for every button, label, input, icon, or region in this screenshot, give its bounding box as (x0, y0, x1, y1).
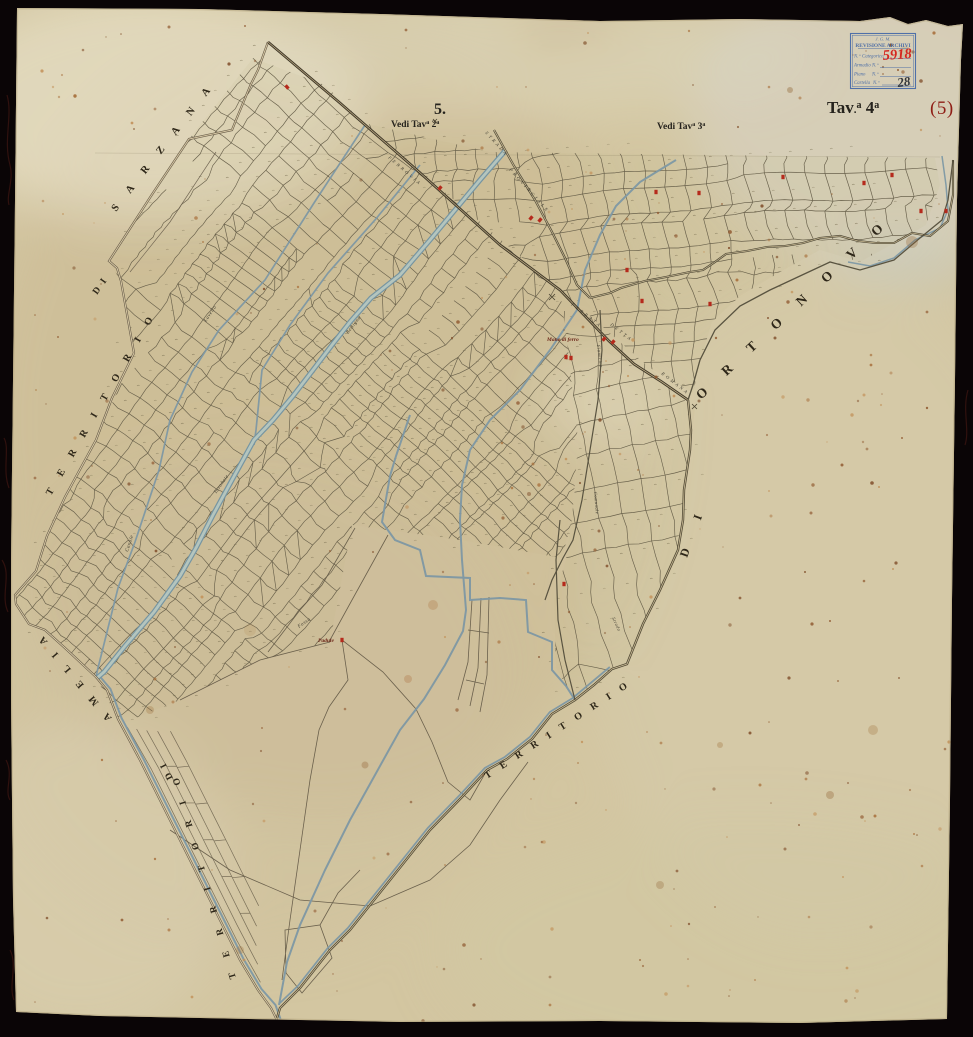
svg-text:Cartella: Cartella (854, 81, 871, 86)
svg-text:Piano: Piano (853, 73, 866, 78)
svg-text:o: o (878, 79, 880, 83)
svg-text:N.: N. (872, 81, 877, 86)
svg-text:N.: N. (871, 73, 876, 78)
svg-text:Categorico: Categorico (862, 55, 884, 60)
svg-text:5918: 5918 (882, 46, 913, 64)
svg-text:Padule: Padule (318, 638, 334, 644)
svg-text:Mano di ferro: Mano di ferro (546, 337, 579, 343)
svg-text:Tav.a 4a: Tav.a 4a (827, 98, 879, 117)
svg-text:Vedi Tava 3a: Vedi Tava 3a (657, 122, 705, 132)
svg-text:o: o (877, 71, 879, 75)
svg-text:28: 28 (895, 73, 911, 90)
svg-text:N.: N. (853, 55, 858, 60)
svg-text:Vedi Tava 2a: Vedi Tava 2a (391, 120, 439, 130)
svg-text:o: o (859, 53, 861, 57)
svg-text:o: o (877, 62, 879, 66)
svg-text:5.: 5. (434, 101, 446, 118)
svg-text:Armadio N.: Armadio N. (853, 64, 876, 69)
svg-text:(5): (5) (930, 98, 954, 119)
svg-text:J. G. M.: J. G. M. (876, 37, 891, 42)
